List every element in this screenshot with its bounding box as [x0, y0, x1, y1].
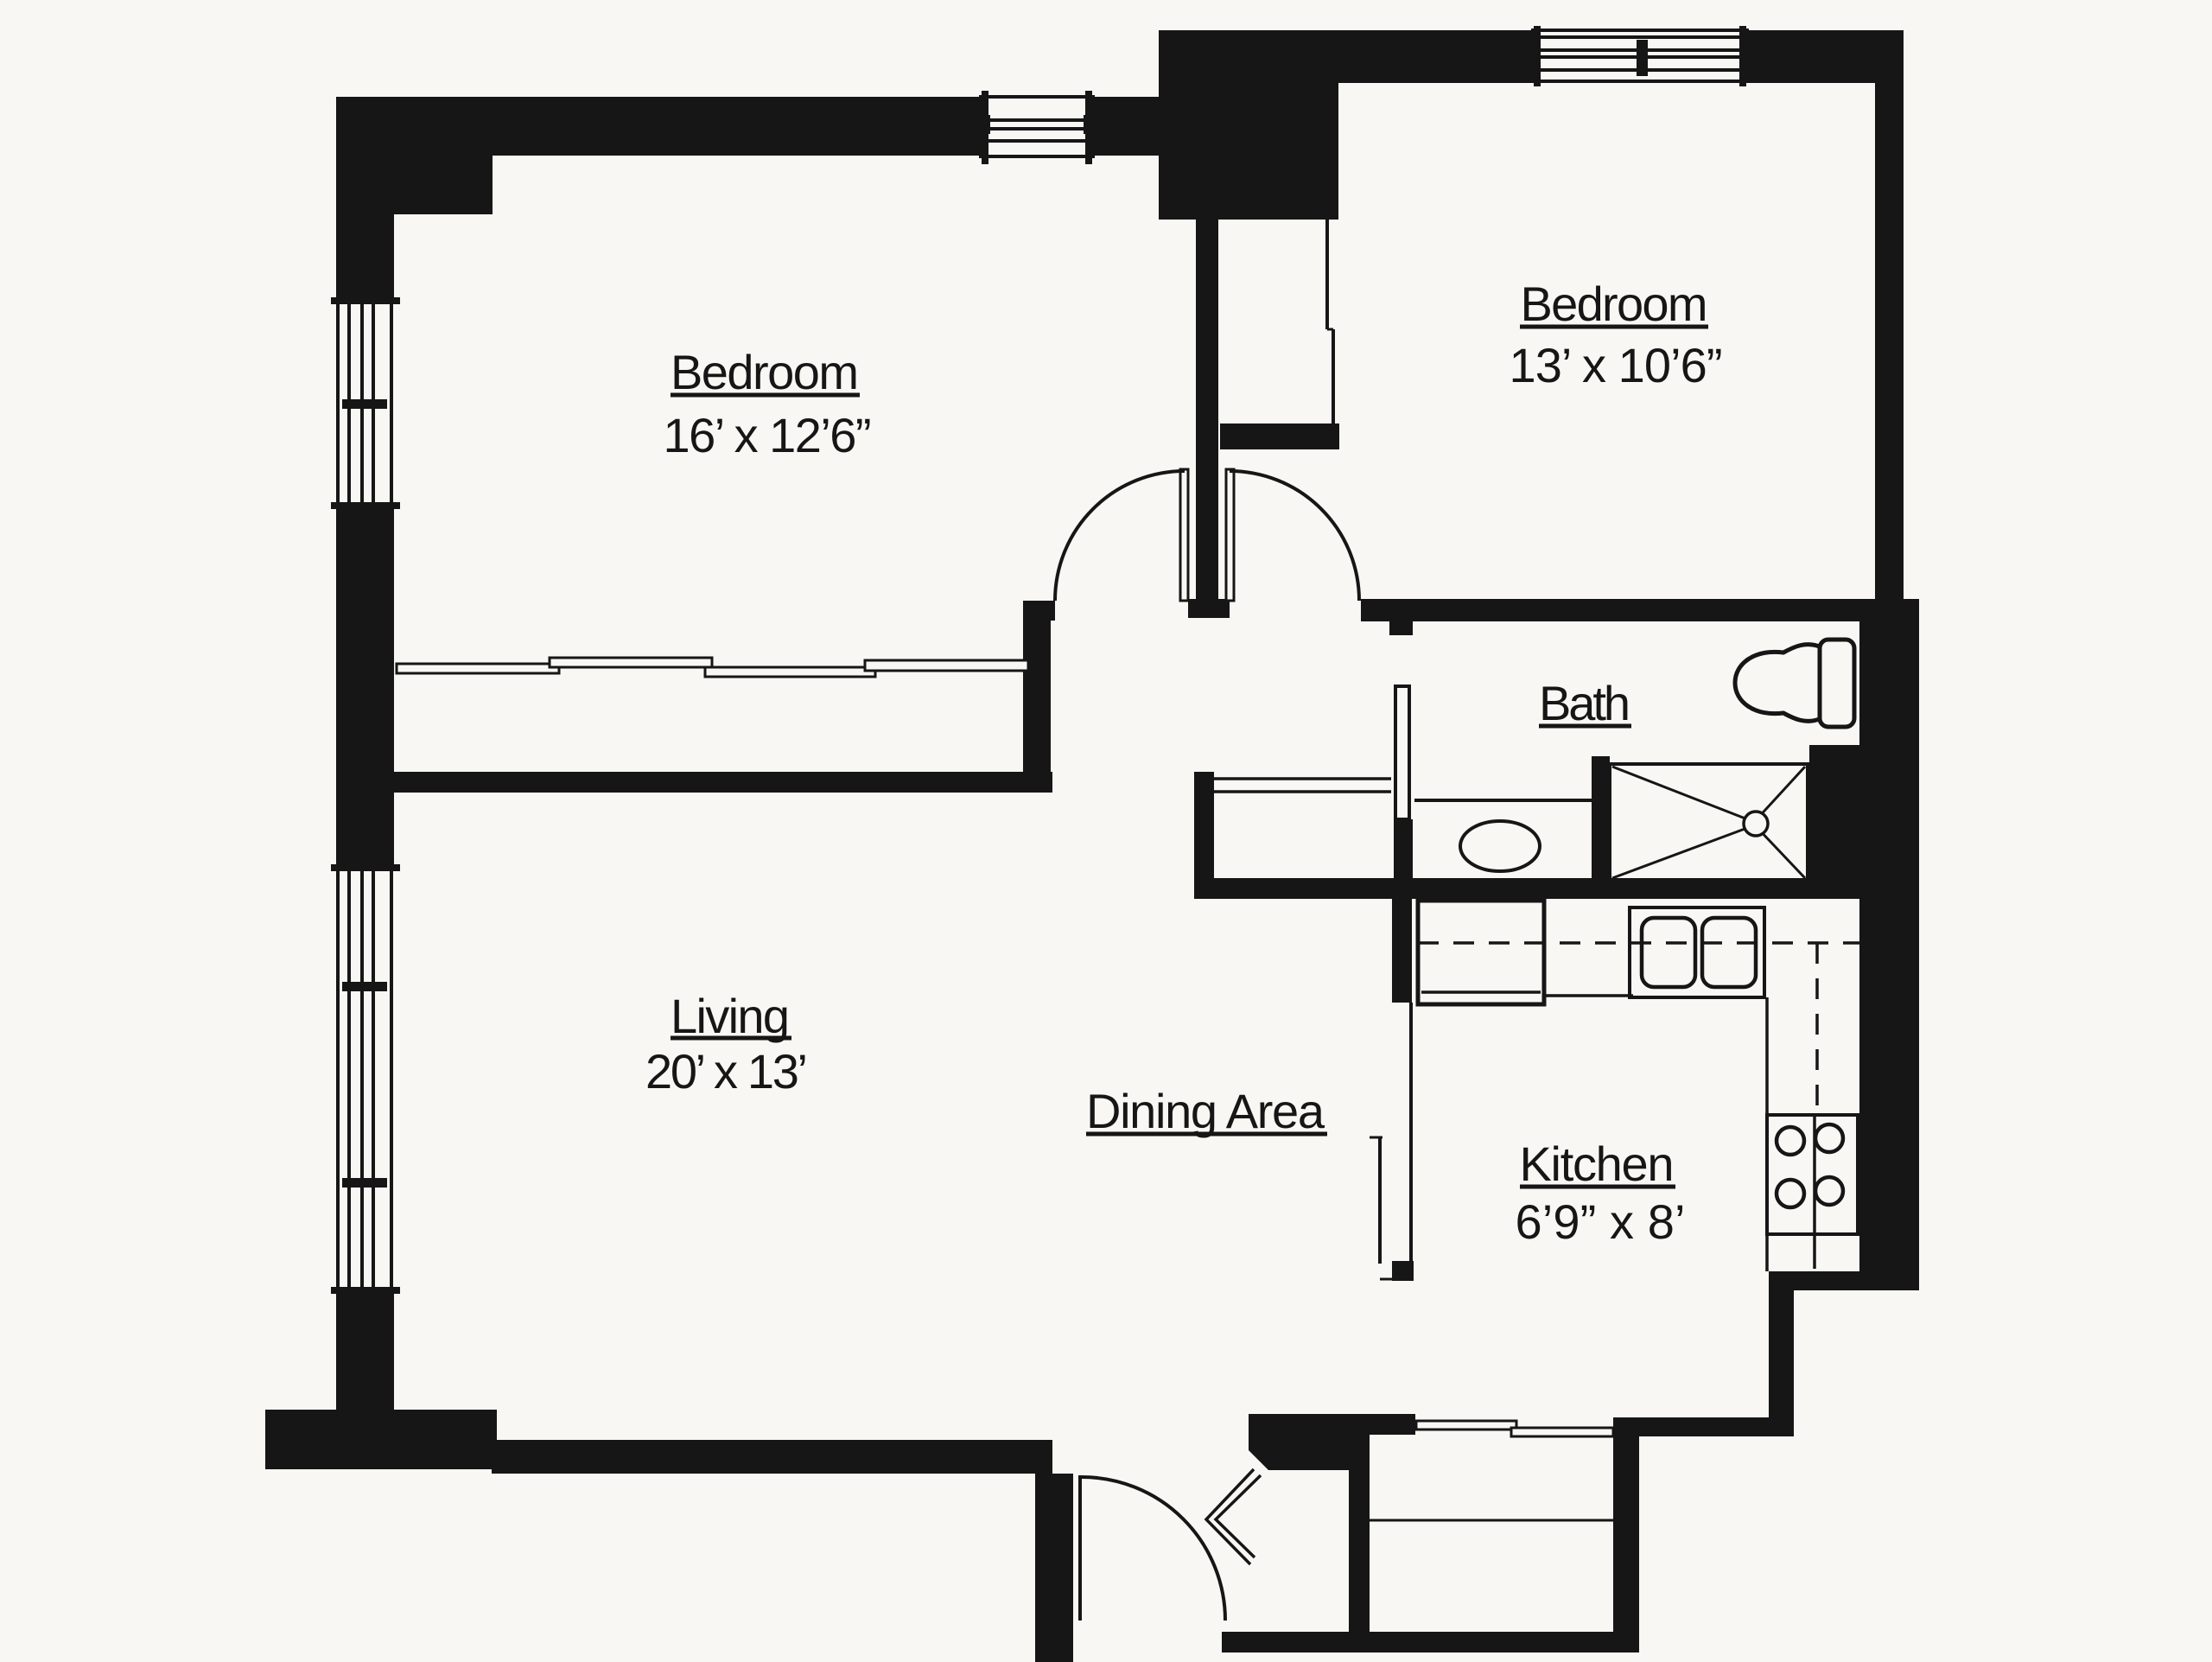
- svg-text:Living: Living: [671, 989, 790, 1043]
- svg-text:6’9” x 8’: 6’9” x 8’: [1516, 1194, 1686, 1249]
- svg-text:20’ x 13’: 20’ x 13’: [645, 1044, 808, 1098]
- svg-text:16’ x 12’6”: 16’ x 12’6”: [664, 408, 872, 462]
- svg-text:Bedroom: Bedroom: [1521, 277, 1708, 331]
- svg-text:Kitchen: Kitchen: [1520, 1137, 1675, 1191]
- svg-text:Dining Area: Dining Area: [1086, 1084, 1325, 1138]
- svg-text:Bath: Bath: [1539, 676, 1630, 730]
- svg-text:Bedroom: Bedroom: [671, 345, 859, 399]
- svg-text:13’ x 10’6”: 13’ x 10’6”: [1510, 338, 1723, 392]
